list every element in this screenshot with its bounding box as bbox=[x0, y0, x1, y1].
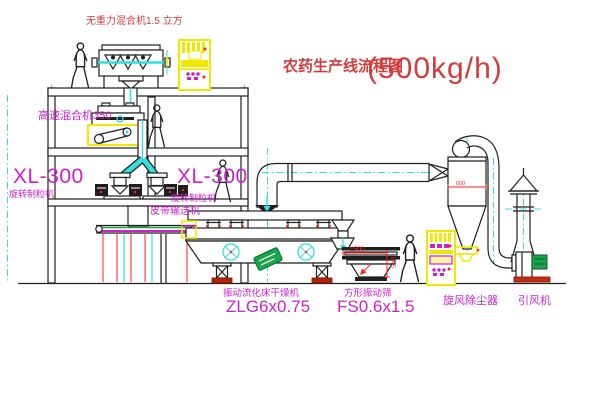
granulator-discharge-duct bbox=[128, 206, 148, 226]
fan-base bbox=[514, 277, 550, 282]
gravity-free-mixer-drawing bbox=[92, 45, 171, 89]
dryer-spring-mount-right bbox=[312, 263, 332, 283]
control-cabinet-2 bbox=[427, 231, 455, 285]
dryer-spring-mount-left bbox=[212, 263, 232, 283]
screen-height-dimension: 945 bbox=[389, 257, 396, 268]
fan-label: 引风机 bbox=[518, 293, 551, 307]
diagram-title-capacity: (500kg/h) bbox=[367, 52, 503, 85]
granulator-right-model: XL-300 bbox=[177, 165, 248, 188]
flow-diagram-canvas: 无重力混合机1.5 立方 农药生产线流程图 (500kg/h) 高速混合机350… bbox=[0, 0, 600, 403]
granulator-left-model: XL-300 bbox=[13, 165, 84, 188]
gravity-mixer-label: 无重力混合机1.5 立方 bbox=[86, 14, 183, 27]
conveyor-support-legs bbox=[103, 234, 187, 283]
dryer-model-label: ZLG6x0.75 bbox=[226, 297, 310, 316]
worker-figure-ground bbox=[401, 235, 419, 282]
worker-figure-top-floor bbox=[71, 43, 88, 88]
fan-inlet-elbow bbox=[488, 248, 514, 268]
control-cabinet-1 bbox=[179, 40, 210, 90]
belt-conveyor-label: 皮带输送机 bbox=[150, 204, 200, 217]
screen-length-dimension: 1500 bbox=[350, 246, 365, 253]
screen-model-label: FS0.6x1.5 bbox=[337, 297, 415, 316]
dryer-hood-stubs bbox=[206, 220, 331, 228]
fan-motor bbox=[532, 255, 547, 269]
dryer-exhaust-duct bbox=[255, 164, 429, 215]
cyclone-label: 旋风除尘器 bbox=[443, 293, 498, 307]
process-flow-drawing: 无重力混合机1.5 立方 农药生产线流程图 (500kg/h) 高速混合机350… bbox=[0, 0, 600, 403]
induced-draft-fan-drawing bbox=[512, 252, 550, 282]
granulator-left-drawing bbox=[95, 173, 142, 199]
cyclone-diameter-dimension: 600 bbox=[456, 181, 465, 187]
granulator-right-name: 旋转制粒机 bbox=[171, 192, 216, 203]
high-speed-mixer-label: 高速混合机350 bbox=[38, 108, 111, 122]
granulator-left-name: 旋转制粒机 bbox=[9, 188, 54, 199]
